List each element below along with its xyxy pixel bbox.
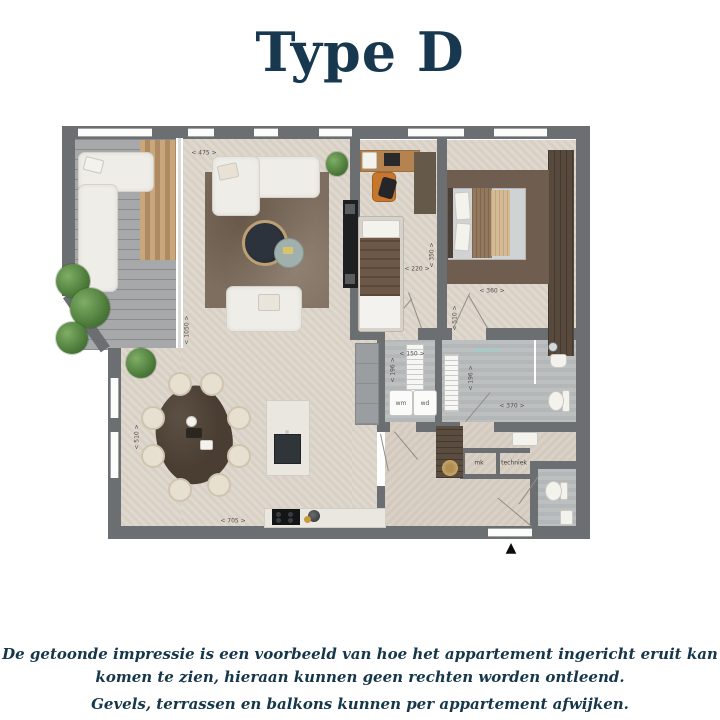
living-plant xyxy=(326,152,348,176)
kitchen-plant xyxy=(126,348,156,378)
label-shower: douche xyxy=(474,346,500,354)
window-living-1 xyxy=(188,128,214,137)
burner-3 xyxy=(276,518,281,523)
hall-hat xyxy=(442,460,458,476)
wc-toilet-bowl xyxy=(545,481,562,501)
master-pillow-2 xyxy=(454,222,471,251)
bed2-blanket xyxy=(360,238,400,296)
dim-bathroom-depth: < 196 > xyxy=(468,365,475,390)
window-bedroom2 xyxy=(408,128,464,137)
balcony-plant-3 xyxy=(56,322,88,354)
burner-4 xyxy=(288,518,293,523)
floorplan: wm wd xyxy=(62,126,590,540)
dim-bedroom2-width: < 220 > xyxy=(404,266,429,273)
dim-laundry-width: < 150 > xyxy=(399,351,424,358)
wall-closet-bottom xyxy=(460,474,530,479)
bedroom2-wardrobe xyxy=(414,152,436,214)
page-title: Type D xyxy=(0,20,720,84)
burner-2 xyxy=(288,512,293,517)
tv-speaker-top xyxy=(345,204,355,214)
dining-chair-5 xyxy=(141,406,165,430)
label-technical: techniek xyxy=(501,460,527,467)
master-headboard xyxy=(448,188,453,258)
master-throw-tan xyxy=(491,190,510,256)
table-plate-2 xyxy=(200,440,213,450)
table-tray xyxy=(186,428,202,438)
window-dining-1 xyxy=(110,378,119,418)
bed2-sheet xyxy=(360,296,400,328)
island-sink xyxy=(274,434,301,464)
dryer: wd xyxy=(413,390,437,416)
window-balcony xyxy=(78,128,152,137)
dim-kitchen-width: < 705 > xyxy=(220,518,245,525)
side-table-book xyxy=(283,247,293,254)
dining-chair-2 xyxy=(207,473,231,497)
shower-glass xyxy=(534,340,536,384)
master-pillow-1 xyxy=(454,192,471,221)
bed2-pillow xyxy=(362,220,400,238)
wall-closet-top xyxy=(460,448,530,453)
dining-chair-1 xyxy=(227,444,251,468)
window-bedroom1 xyxy=(494,128,547,137)
dim-bathroom-width: < 370 > xyxy=(499,403,524,410)
burner-1 xyxy=(276,512,281,517)
wall-closet-divider xyxy=(496,448,500,479)
dim-bedroom2-length: < 350 > xyxy=(429,242,436,267)
page: Type D xyxy=(0,0,720,720)
dining-chair-4 xyxy=(141,444,165,468)
entrance-marker: ▲ xyxy=(506,540,517,556)
label-meter-cupboard: mk xyxy=(474,460,483,467)
hall-side-table xyxy=(512,432,538,446)
desk-shelf xyxy=(362,152,377,169)
table-plate-1 xyxy=(186,416,197,427)
wall-bedroom-divider xyxy=(437,138,447,330)
window-living-3 xyxy=(319,128,352,137)
kitchen-tall-cabinet xyxy=(355,343,379,425)
disclaimer-line-2: komen te zien, hieraan kunnen geen recht… xyxy=(0,668,720,686)
wall-wc-left xyxy=(530,461,538,528)
dining-chair-8 xyxy=(227,406,251,430)
dining-chair-7 xyxy=(200,372,224,396)
dim-living-length: < 1050 > xyxy=(184,315,191,344)
entrance-door-gap xyxy=(488,528,532,537)
toilet-bowl xyxy=(548,391,564,411)
dining-chair-3 xyxy=(168,478,192,502)
bathroom-radiator xyxy=(444,354,459,412)
master-wardrobe xyxy=(548,150,574,356)
island-faucet xyxy=(285,430,289,434)
disclaimer-line-3: Gevels, terrassen en balkons kunnen per … xyxy=(0,695,720,713)
disclaimer-line-1: De getoonde impressie is een voorbeeld v… xyxy=(0,645,720,663)
living-sofa-cushion xyxy=(258,294,280,311)
wc-sink xyxy=(560,510,573,525)
kitchen-item xyxy=(304,516,311,523)
wall-right xyxy=(576,126,590,539)
dim-laundry-depth: < 196 > xyxy=(390,357,397,382)
washing-machine: wm xyxy=(389,390,413,416)
dim-living-width: < 475 > xyxy=(191,150,216,157)
dining-chair-6 xyxy=(168,372,192,396)
desk-laptop xyxy=(384,153,400,166)
dim-bedroom1-width: < 360 > xyxy=(479,288,504,295)
door-gap-bathroom xyxy=(460,422,494,432)
dim-dining-depth: < 510 > xyxy=(134,424,141,449)
shower-head-icon xyxy=(548,342,558,352)
tv-speaker-bottom xyxy=(345,274,355,284)
window-living-2 xyxy=(254,128,278,137)
window-dining-2 xyxy=(110,432,119,478)
bathroom-sink xyxy=(550,354,567,368)
master-throw-brown xyxy=(472,188,492,258)
dim-bedroom1-length: < 510 > xyxy=(452,305,459,330)
balcony-glass-wall xyxy=(176,138,183,348)
